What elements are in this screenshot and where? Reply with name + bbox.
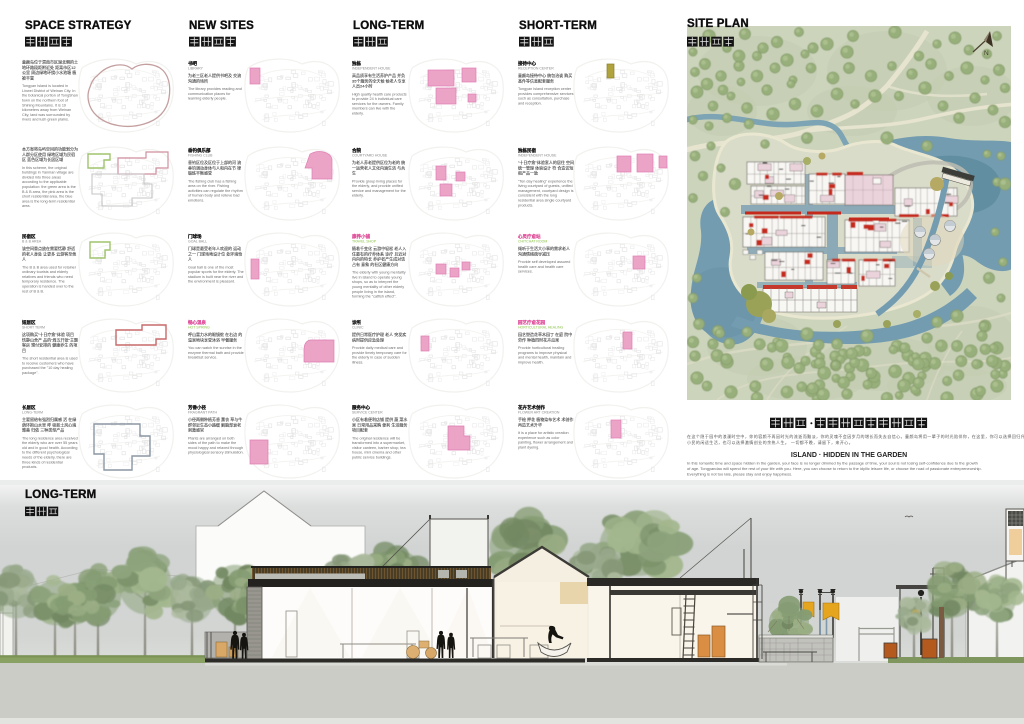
svg-text:N: N <box>984 50 989 57</box>
